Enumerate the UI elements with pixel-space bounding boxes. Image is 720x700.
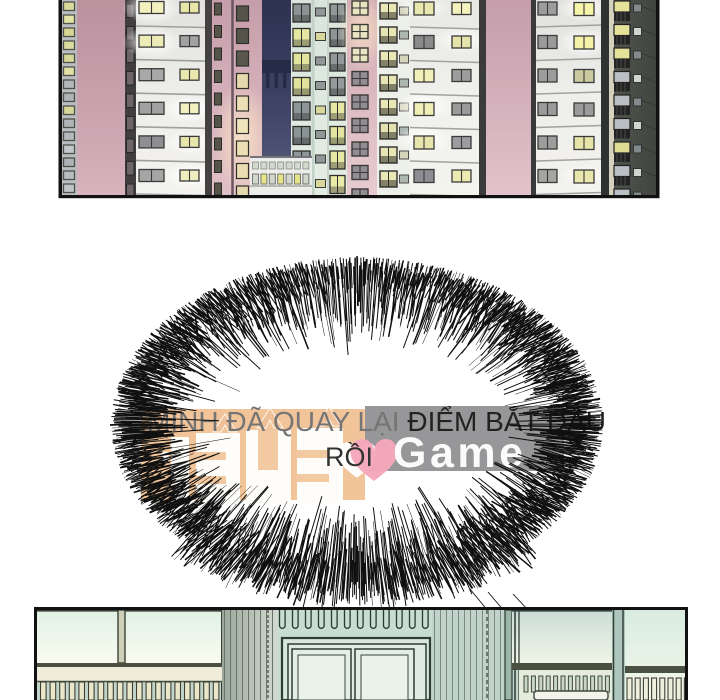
svg-text:RỒI: RỒI [325, 441, 373, 472]
